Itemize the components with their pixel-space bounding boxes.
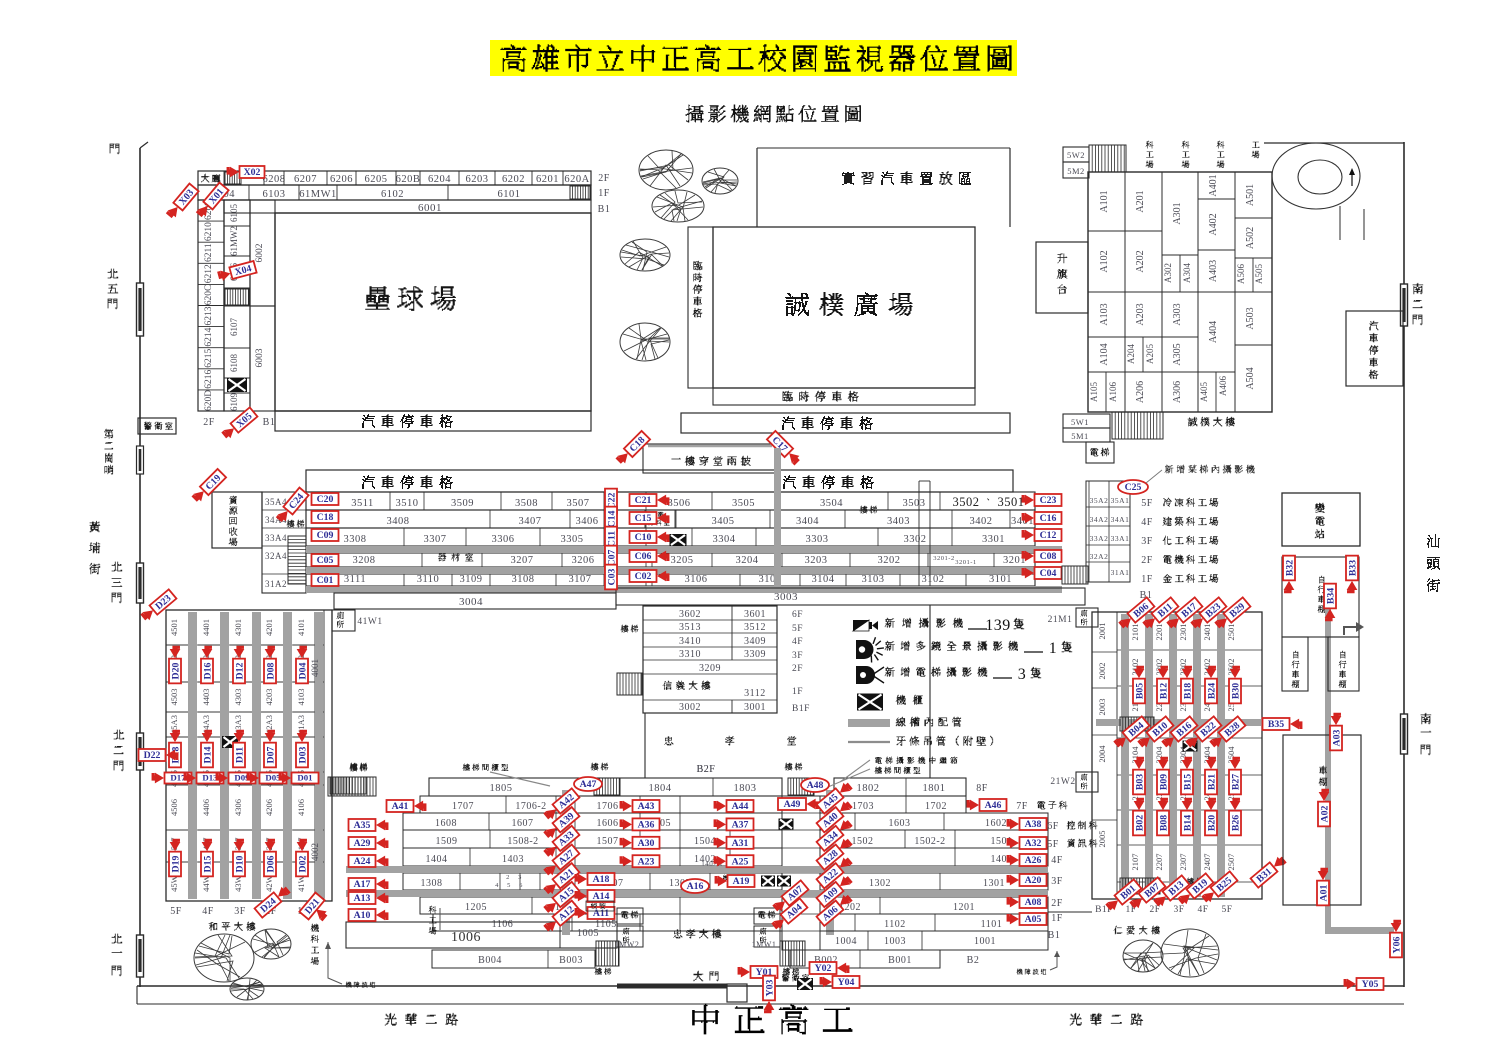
svg-text:3109: 3109 [460,574,483,585]
svg-text:5F: 5F [170,906,182,917]
svg-text:C08: C08 [1040,551,1057,562]
svg-text:6105: 6105 [229,204,239,223]
svg-text:Y05: Y05 [1362,979,1379,990]
svg-text:B18: B18 [1183,683,1194,699]
svg-text:3004: 3004 [459,596,483,608]
svg-text:B35: B35 [1268,719,1284,730]
svg-text:A17: A17 [354,879,371,890]
svg-text:A303: A303 [1172,303,1183,325]
svg-text:A18: A18 [593,874,610,885]
svg-text:3101: 3101 [989,574,1012,585]
svg-text:D03: D03 [298,746,309,763]
svg-text:2001: 2001 [1097,623,1107,640]
svg-text:6103: 6103 [263,189,286,200]
svg-text:A302: A302 [1163,263,1173,283]
svg-text:4403: 4403 [201,689,211,706]
svg-text:3201-2: 3201-2 [933,555,954,562]
svg-text:1502-2: 1502-2 [914,836,945,847]
svg-text:1608: 1608 [435,818,457,829]
svg-text:1606: 1606 [597,818,619,829]
svg-text:D08: D08 [266,662,277,679]
svg-text:6210: 6210 [204,222,214,241]
svg-text:3102: 3102 [922,574,945,585]
svg-text:6203: 6203 [466,174,489,185]
svg-text:A29: A29 [354,838,371,849]
svg-text:Y03: Y03 [765,979,776,996]
svg-text:A404: A404 [1208,321,1219,343]
svg-text:A26: A26 [1025,855,1042,866]
svg-text:1F: 1F [1141,574,1153,585]
svg-text:2107: 2107 [1130,854,1140,871]
svg-text:C16: C16 [1040,513,1057,524]
svg-text:B2F: B2F [697,764,716,775]
svg-text:3308: 3308 [344,534,367,545]
svg-text:D22: D22 [144,750,161,761]
svg-text:3F: 3F [792,651,803,661]
svg-text:3206: 3206 [572,555,595,566]
svg-text:3306: 3306 [492,534,515,545]
svg-text:5W1: 5W1 [1071,417,1089,427]
svg-text:4002: 4002 [310,843,320,861]
svg-text:D12: D12 [235,662,246,679]
svg-text:B20: B20 [1207,815,1218,831]
svg-text:3002: 3002 [679,702,701,713]
svg-text:1707: 1707 [452,801,474,812]
svg-text:3407: 3407 [519,516,542,527]
svg-text:1F: 1F [1051,913,1063,924]
svg-text:D10: D10 [235,855,246,872]
svg-text:3201-1: 3201-1 [955,559,976,566]
svg-text:2F: 2F [598,173,610,184]
svg-text:2004: 2004 [1097,745,1107,763]
svg-text:6214: 6214 [204,327,214,346]
svg-text:A13: A13 [354,893,371,904]
svg-text:31A1: 31A1 [1111,568,1130,577]
svg-text:4503: 4503 [169,689,179,706]
svg-text:A11: A11 [593,908,609,919]
svg-text:1: 1 [1049,640,1058,657]
svg-text:1MW1: 1MW1 [752,940,777,949]
svg-text:5F: 5F [1141,498,1153,509]
svg-text:2005: 2005 [1097,831,1107,848]
svg-text:34A2: 34A2 [1090,515,1109,524]
svg-text:1101: 1101 [981,919,1003,930]
svg-text:A304: A304 [1182,263,1192,283]
svg-text:B24: B24 [1207,683,1218,699]
svg-text:C25: C25 [1125,482,1142,493]
svg-text:B1F: B1F [792,704,810,714]
svg-text:2F: 2F [1141,555,1153,566]
svg-text:1004: 1004 [835,936,857,947]
svg-text:D04: D04 [298,662,309,679]
svg-text:C01: C01 [317,575,334,586]
svg-text:3205: 3205 [671,555,694,566]
svg-text:3110: 3110 [417,574,440,585]
svg-text:A44: A44 [732,801,749,812]
svg-text:3107: 3107 [569,574,592,585]
svg-text:A19: A19 [733,876,750,887]
svg-text:4303: 4303 [233,689,243,706]
svg-text:620C: 620C [204,285,214,306]
svg-text:B21: B21 [1207,774,1218,790]
svg-text:C04: C04 [1040,568,1057,579]
svg-text:B12: B12 [1159,683,1170,699]
svg-text:4: 4 [495,882,499,889]
svg-text:A202: A202 [1135,250,1146,272]
svg-text:D11: D11 [235,747,246,763]
svg-text:1102: 1102 [884,919,906,930]
svg-text:B03: B03 [1135,774,1146,790]
svg-text:35A2: 35A2 [1090,496,1109,505]
svg-text:1001: 1001 [974,936,996,947]
svg-text:B004: B004 [478,955,502,966]
svg-text:3511: 3511 [351,498,374,509]
svg-text:6216: 6216 [204,370,214,389]
svg-text:6001: 6001 [418,202,442,214]
svg-text:5M1: 5M1 [1071,431,1089,441]
svg-text:620D: 620D [204,390,214,411]
svg-text:3402: 3402 [970,516,993,527]
svg-text:C18: C18 [317,512,334,523]
svg-text:3305: 3305 [561,534,584,545]
svg-text:A103: A103 [1099,303,1110,325]
svg-text:1607: 1607 [512,818,534,829]
svg-text:2301: 2301 [1178,624,1188,641]
svg-text:2501: 2501 [1226,624,1236,641]
svg-text:B08: B08 [1159,815,1170,831]
svg-text:2307: 2307 [1178,854,1188,871]
svg-text:B32: B32 [1285,560,1296,576]
svg-text:A501: A501 [1245,184,1256,206]
svg-text:B26: B26 [1231,815,1242,831]
svg-text:B001: B001 [888,955,912,966]
svg-text:61MW1: 61MW1 [299,189,337,200]
svg-text:D16: D16 [203,662,214,679]
svg-text:5F: 5F [792,624,803,634]
svg-text:4201: 4201 [264,619,274,636]
svg-text:31A2: 31A2 [265,579,287,589]
svg-text:A02: A02 [1320,805,1331,822]
svg-text:3003: 3003 [774,591,798,603]
svg-text:6201: 6201 [536,174,559,185]
svg-text:3502: 3502 [953,495,980,509]
svg-text:1702: 1702 [925,801,947,812]
svg-text:6215: 6215 [204,348,214,367]
svg-text:A401: A401 [1208,174,1219,196]
svg-text:1F: 1F [792,687,803,697]
svg-text:3: 3 [518,874,522,881]
svg-text:2F: 2F [1051,898,1063,909]
svg-text:A46: A46 [985,800,1002,811]
svg-text:3301: 3301 [982,534,1005,545]
svg-text:5F: 5F [1047,839,1059,850]
svg-text:A306: A306 [1172,381,1183,403]
svg-text:6213: 6213 [204,306,214,325]
svg-text:6202: 6202 [502,174,525,185]
svg-text:33A1: 33A1 [1111,534,1130,543]
svg-text:4F: 4F [1141,517,1153,528]
svg-text:3304: 3304 [713,534,736,545]
svg-text:32A4: 32A4 [265,551,287,561]
svg-text:B05: B05 [1135,683,1146,699]
svg-text:2201: 2201 [1154,624,1164,641]
svg-text:3307: 3307 [424,534,447,545]
svg-text:C02: C02 [635,571,652,582]
svg-text:B1: B1 [263,417,276,428]
svg-text:1706-2: 1706-2 [515,801,546,812]
svg-text:A35: A35 [354,820,371,831]
svg-text:1603: 1603 [889,818,911,829]
svg-text:1801: 1801 [923,783,946,794]
svg-text:6: 6 [519,882,523,889]
svg-text:A201: A201 [1135,190,1146,212]
svg-text:6109: 6109 [229,393,239,412]
svg-text:Y06: Y06 [1392,936,1403,953]
svg-text:3512: 3512 [744,622,766,633]
svg-text:3209: 3209 [699,663,721,674]
svg-text:3509: 3509 [451,498,474,509]
svg-text:1308: 1308 [421,878,443,889]
svg-text:A01: A01 [1319,884,1330,901]
svg-text:3207: 3207 [511,555,534,566]
svg-text:6206: 6206 [330,174,353,185]
svg-text:6207: 6207 [294,174,317,185]
svg-text:3506: 3506 [668,498,691,509]
svg-text:3204: 3204 [736,555,759,566]
svg-text:3104: 3104 [812,574,835,585]
svg-text:2002: 2002 [1097,663,1107,680]
svg-text:3504: 3504 [820,498,843,509]
svg-text:3405: 3405 [712,516,735,527]
svg-text:4301: 4301 [233,619,243,636]
svg-text:6208: 6208 [263,174,286,185]
svg-text:B2: B2 [967,955,980,966]
svg-text:2507: 2507 [1226,854,1236,871]
svg-text:A31: A31 [732,838,749,849]
svg-text:A505: A505 [1254,264,1264,284]
svg-text:6F: 6F [792,610,803,620]
svg-text:C10: C10 [635,532,652,543]
svg-text:3302: 3302 [904,534,927,545]
svg-text:C09: C09 [317,530,334,541]
svg-text:3108: 3108 [512,574,535,585]
svg-text:1508-2: 1508-2 [507,836,538,847]
svg-text:D07: D07 [266,746,277,763]
svg-text:2401: 2401 [1202,624,1212,641]
svg-text:1502: 1502 [852,836,874,847]
svg-text:B27: B27 [1231,774,1242,790]
svg-text:2: 2 [506,874,510,881]
svg-text:A402: A402 [1208,213,1219,235]
svg-text:1805: 1805 [490,783,513,794]
svg-text:D14: D14 [203,746,214,763]
svg-text:B09: B09 [1159,774,1170,790]
svg-text:A24: A24 [354,856,371,867]
svg-text:3406: 3406 [576,516,599,527]
svg-text:3202: 3202 [878,555,901,566]
svg-text:A406: A406 [1218,376,1228,396]
svg-text:A403: A403 [1208,260,1219,282]
svg-text:B15: B15 [1183,774,1194,790]
svg-text:4F: 4F [1051,855,1063,866]
svg-text:A305: A305 [1172,343,1183,365]
svg-text:1706: 1706 [597,801,619,812]
svg-text:4F: 4F [202,906,214,917]
svg-text:A14: A14 [593,891,610,902]
svg-text:A23: A23 [638,856,655,867]
svg-text:A41: A41 [392,801,409,812]
svg-text:A20: A20 [1025,875,1042,886]
svg-text:1803: 1803 [734,783,757,794]
svg-text:3505: 3505 [732,498,755,509]
svg-text:2F: 2F [203,417,215,428]
svg-text:1201: 1201 [953,902,975,913]
svg-text:32A2: 32A2 [1090,552,1109,561]
svg-text:3F: 3F [234,906,246,917]
svg-text:3508: 3508 [515,498,538,509]
svg-text:1403: 1403 [502,854,524,865]
svg-text:D15: D15 [203,855,214,872]
svg-text:C20: C20 [317,494,334,505]
svg-text:34A1: 34A1 [1111,515,1130,524]
svg-text:7F: 7F [1016,801,1028,812]
svg-text:B30: B30 [1231,683,1242,699]
svg-text:41W1: 41W1 [357,617,382,627]
svg-text:2407: 2407 [1202,854,1212,871]
svg-text:A43: A43 [638,801,655,812]
svg-text:4F: 4F [792,637,803,647]
svg-text:A47: A47 [580,779,597,790]
svg-text:1802: 1802 [857,783,880,794]
svg-text:D19: D19 [171,855,182,872]
svg-text:6F: 6F [1047,821,1059,832]
svg-text:6212: 6212 [204,264,214,283]
svg-text:4001: 4001 [310,659,320,677]
svg-text:4406: 4406 [201,799,211,816]
svg-text:2101: 2101 [1130,624,1140,641]
svg-text:3310: 3310 [679,649,701,660]
svg-text:A105: A105 [1089,382,1099,402]
svg-text:Y04: Y04 [838,977,855,988]
svg-text:A36: A36 [638,820,655,831]
svg-text:6002: 6002 [255,243,265,262]
svg-text:6204: 6204 [428,174,451,185]
svg-text:4401: 4401 [201,619,211,636]
svg-text:A506: A506 [1236,264,1246,284]
svg-text:D20: D20 [171,662,182,679]
svg-text:A49: A49 [784,799,801,810]
svg-text:C14: C14 [607,510,618,527]
svg-text:3501: 3501 [998,495,1025,509]
svg-text:21W2: 21W2 [1050,777,1075,787]
svg-text:A106: A106 [1108,382,1118,402]
svg-text:6108: 6108 [229,354,239,373]
svg-text:B1: B1 [1048,930,1061,941]
svg-text:C03: C03 [607,568,618,585]
svg-text:C06: C06 [635,551,652,562]
svg-text:A405: A405 [1199,382,1209,402]
svg-text:A104: A104 [1099,343,1110,365]
svg-text:1507: 1507 [597,836,619,847]
svg-text:3409: 3409 [744,636,766,647]
svg-text:1602: 1602 [985,818,1007,829]
svg-text:A205: A205 [1145,344,1155,364]
svg-text:1006: 1006 [451,930,481,945]
svg-text:5M2: 5M2 [1067,166,1085,176]
svg-text:4306: 4306 [233,799,243,816]
svg-text:3507: 3507 [567,498,590,509]
svg-text:C05: C05 [317,555,334,566]
svg-text:3: 3 [1018,666,1027,683]
svg-text:3309: 3309 [744,649,766,660]
svg-text:1301: 1301 [983,878,1005,889]
svg-text:3513: 3513 [679,622,701,633]
svg-text:5W2: 5W2 [1067,150,1085,160]
svg-text:B003: B003 [559,955,583,966]
svg-text:3103: 3103 [862,574,885,585]
svg-text:D01: D01 [297,773,312,783]
svg-text:2F: 2F [792,664,803,674]
svg-text:5: 5 [507,882,511,889]
svg-text:B33: B33 [1348,560,1359,576]
svg-text:C23: C23 [1040,495,1057,506]
svg-text:3203: 3203 [805,555,828,566]
svg-text:A16: A16 [687,881,704,892]
svg-text:5F: 5F [1221,905,1232,915]
svg-text:4F: 4F [1197,905,1208,915]
svg-text:1106: 1106 [492,919,514,930]
svg-text:3F: 3F [1173,905,1184,915]
svg-text:A10: A10 [354,910,371,921]
svg-text:4506: 4506 [169,799,179,816]
svg-text:1005: 1005 [577,928,599,939]
svg-text:A204: A204 [1126,344,1136,364]
svg-text:4501: 4501 [169,619,179,636]
svg-text:B14: B14 [1183,815,1194,831]
svg-text:2F: 2F [1149,905,1160,915]
svg-text:A206: A206 [1135,381,1146,403]
svg-text:A08: A08 [1025,897,1042,908]
svg-text:D02: D02 [298,855,309,872]
svg-text:6211: 6211 [204,243,214,262]
svg-text:3111: 3111 [344,574,366,585]
svg-text:3408: 3408 [387,516,410,527]
svg-text:A102: A102 [1099,250,1110,272]
svg-text:4101: 4101 [296,619,306,636]
svg-text:3F: 3F [1141,536,1153,547]
svg-text:1404: 1404 [426,854,448,865]
svg-text:Y02: Y02 [815,963,832,974]
svg-text:4103: 4103 [296,689,306,706]
svg-text:4203: 4203 [264,689,274,706]
svg-text:1F: 1F [598,188,610,199]
svg-text:2207: 2207 [1154,854,1164,871]
svg-text:3001: 3001 [744,702,766,713]
svg-text:3602: 3602 [679,609,701,620]
svg-text:1003: 1003 [884,936,906,947]
svg-text:3208: 3208 [353,555,376,566]
svg-text:A37: A37 [732,820,749,831]
svg-text:C21: C21 [635,495,652,506]
svg-text:A502: A502 [1245,227,1256,249]
svg-text:1205: 1205 [465,902,487,913]
svg-text:8F: 8F [976,783,988,794]
svg-text:3410: 3410 [679,636,701,647]
svg-text:X02: X02 [244,167,261,178]
svg-text:B1: B1 [598,204,611,215]
svg-text:A101: A101 [1099,190,1110,212]
svg-text:1504: 1504 [694,836,716,847]
